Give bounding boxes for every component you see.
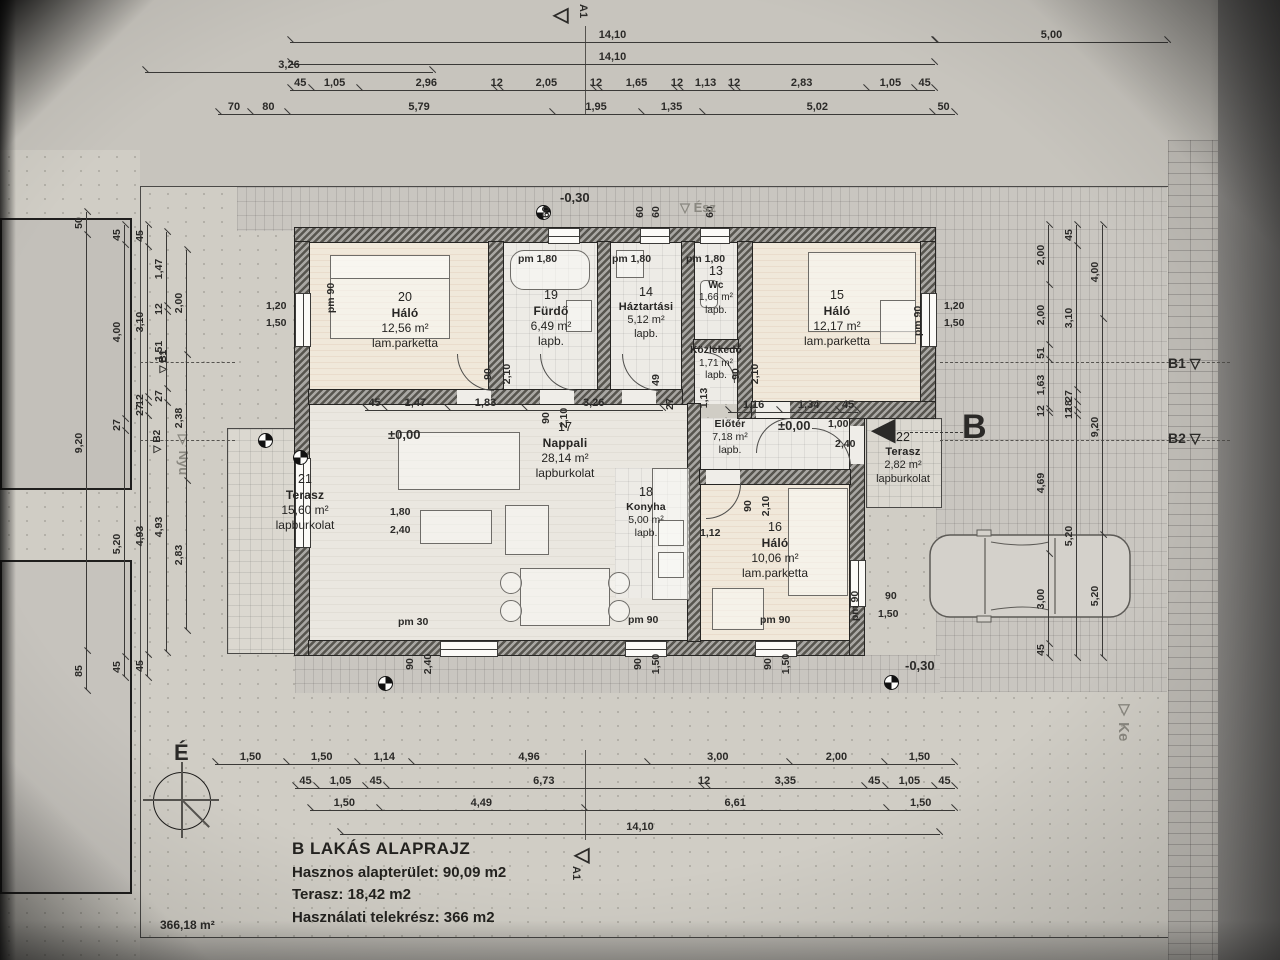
- tv-cabinet: [505, 505, 549, 555]
- section-a-top-label: A1: [577, 4, 589, 18]
- room-label-16: 16 Háló 10,06 m² lam.parketta: [715, 520, 835, 581]
- marker-b2-right: B2 ▽: [1168, 430, 1201, 447]
- coffee-table: [420, 510, 492, 544]
- room-label-21: 21 Terasz 15,60 m² lapburkolat: [240, 472, 370, 533]
- marker-b1-right: B1 ▽: [1168, 355, 1201, 372]
- section-line-b1-left: [140, 362, 235, 363]
- chair-1: [500, 572, 522, 594]
- ann-d90-s1: 90: [632, 658, 644, 670]
- title-block: B LAKÁS ALAPRAJZ Hasznos alapterület: 90…: [292, 836, 506, 929]
- ann-pm90-s2: pm 90: [760, 614, 790, 626]
- dining-table: [520, 568, 610, 626]
- ann-pm90-s1: pm 90: [628, 614, 658, 626]
- ann-d210-1: 2,10: [501, 364, 513, 384]
- plan-title: B LAKÁS ALAPRAJZ: [292, 836, 506, 862]
- marker-ke: ▽ Ke: [1114, 700, 1132, 741]
- window-north-2: [640, 228, 670, 244]
- level-symbol-terrace: [293, 450, 308, 465]
- room-label-15: 15 Háló 12,17 m² lam.parketta: [762, 288, 912, 349]
- ann-120-east: 1,20: [944, 300, 964, 312]
- neighbor-building-2: [0, 560, 132, 894]
- plot-share-line: Használati telekrész: 366 m2: [292, 907, 506, 930]
- chair-4: [608, 600, 630, 622]
- ann-d49: 49: [650, 374, 662, 386]
- ann-d150-s2: 1,50: [780, 654, 792, 674]
- ann-d90-1: 90: [482, 368, 494, 380]
- marker-nyu: ▽ Nyu: [176, 432, 191, 475]
- ann-d180-terr: 1,80: [390, 506, 410, 518]
- section-a-top-triangle: ◁: [553, 2, 568, 27]
- window-south-1: [440, 641, 498, 657]
- floor-plan-photo: 20 Háló 12,56 m² lam.parketta 19 Fürdő 6…: [0, 0, 1280, 960]
- neighbor-building-1: [0, 218, 132, 490]
- door-gap-19: [540, 390, 574, 404]
- ann-pm90-west: pm 90: [325, 283, 337, 313]
- sidewalk-strip: [1168, 140, 1218, 960]
- ann-d210-2: 2,10: [749, 364, 761, 384]
- ann-d90-2: 90: [730, 368, 742, 380]
- room-label-eloter: Előtér 7,18 m² lapb.: [685, 418, 775, 457]
- level-zero-entry: ±0,00: [778, 418, 810, 433]
- room-label-18: 18 Konyha 5,00 m² lapb.: [605, 485, 687, 540]
- ann-60-2: 60: [634, 206, 646, 218]
- ann-150-west: 1,50: [266, 317, 286, 329]
- ann-d90-16: 90: [885, 590, 897, 602]
- photo-background-right: [1218, 0, 1280, 960]
- ann-pm90-16: pm 90: [849, 591, 861, 621]
- car-top-view: [925, 528, 1135, 624]
- room-label-14: 14 Háztartási 5,12 m² lapb.: [604, 285, 688, 342]
- ann-d150-s1: 1,50: [650, 654, 662, 674]
- entry-arrow: ◀: [872, 412, 895, 447]
- ann-120-west: 1,20: [266, 300, 286, 312]
- ann-60-1: 60: [540, 206, 552, 218]
- ann-pm180-3: pm 1,80: [686, 253, 725, 265]
- window-north-1: [548, 228, 580, 244]
- useful-area-line: Hasznos alapterület: 90,09 m2: [292, 862, 506, 885]
- window-west-20: [295, 293, 311, 347]
- room-label-17: 17 Nappali 28,14 m² lapburkolat: [495, 420, 635, 481]
- room-label-19: 19 Fürdő 6,49 m² lapb.: [505, 288, 597, 349]
- terrace-area-line: Terasz: 18,42 m2: [292, 884, 506, 907]
- ann-d90-4: 90: [742, 500, 754, 512]
- ann-pm90-east: pm 90: [912, 306, 924, 336]
- ann-d27: 27: [664, 398, 676, 410]
- chair-3: [608, 572, 630, 594]
- ann-d100-entry: 1,00: [828, 418, 848, 430]
- kitchen-stove: [658, 552, 684, 578]
- ann-d90-3: 90: [540, 412, 552, 424]
- ann-pm180-2: pm 1,80: [612, 253, 651, 265]
- window-north-3: [700, 228, 730, 244]
- entry-dash-line: [905, 432, 963, 433]
- ann-d150-16: 1,50: [878, 608, 898, 620]
- marker-b2-left: ▽ B2: [152, 430, 163, 453]
- ann-60-3: 60: [650, 206, 662, 218]
- room-label-20: 20 Háló 12,56 m² lam.parketta: [330, 290, 480, 351]
- level-symbol-bottom: [884, 675, 899, 690]
- door-gap-14: [622, 390, 656, 404]
- room-label-13: 13 Wc 1,66 m² lapb.: [690, 264, 742, 317]
- level-minus-030-bottom: -0,30: [905, 658, 935, 673]
- wall-north: [295, 228, 935, 242]
- chair-2: [500, 600, 522, 622]
- section-a-bottom-label: A1: [570, 866, 582, 880]
- dresser-room16: [712, 588, 764, 630]
- site-area-label: 366,18 m²: [160, 918, 215, 932]
- ann-pm180-1: pm 1,80: [518, 253, 557, 265]
- level-symbol-sw: [378, 676, 393, 691]
- door-gap-16: [706, 470, 740, 484]
- entry-letter-b: B: [962, 408, 987, 447]
- ann-d113: 1,13: [698, 388, 710, 408]
- marker-esz: ▽ Ész: [680, 200, 716, 216]
- section-a-bottom-triangle: ◁: [574, 842, 589, 867]
- ann-d210-4: 2,10: [760, 496, 772, 516]
- ann-d240-sw: 2,40: [422, 654, 434, 674]
- ann-pm30: pm 30: [398, 616, 428, 628]
- ann-d240-entry: 2,40: [835, 438, 855, 450]
- bed-pillow-room20: [330, 255, 450, 279]
- ann-d112: 1,12: [700, 527, 720, 539]
- level-symbol-eloter: [258, 433, 273, 448]
- ann-d90-s2: 90: [762, 658, 774, 670]
- ann-d90-sw: 90: [404, 658, 416, 670]
- ann-150-east: 1,50: [944, 317, 964, 329]
- ann-d240-terr: 2,40: [390, 524, 410, 536]
- level-zero-terrace: ±0,00: [388, 427, 420, 442]
- level-minus-030-top: -0,30: [560, 190, 590, 205]
